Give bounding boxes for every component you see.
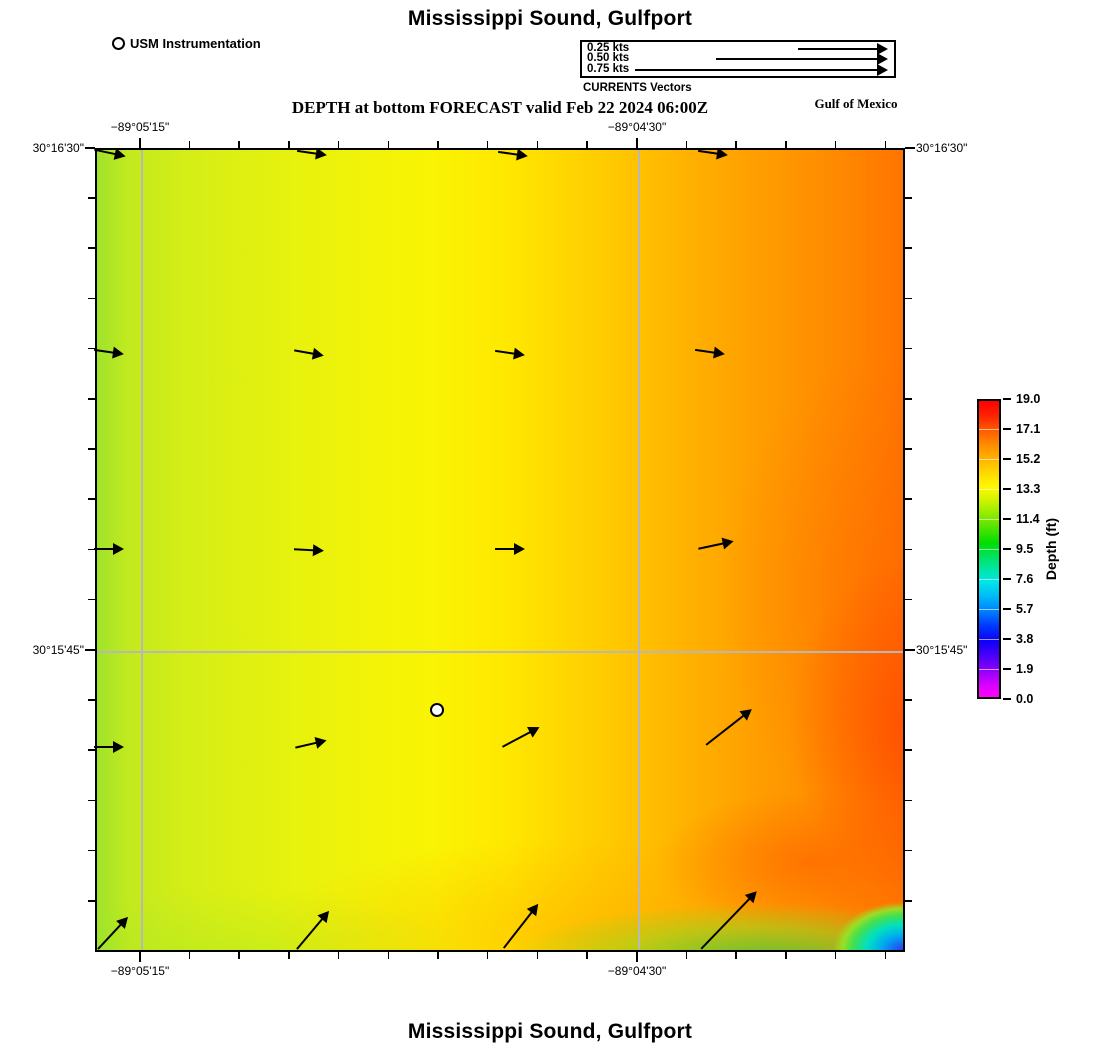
x-tick-top	[586, 141, 588, 148]
y-tick-right	[905, 749, 912, 751]
x-tick-top	[636, 138, 638, 148]
x-axis-label-top: −89°04'30"	[608, 120, 666, 134]
x-tick-bottom	[139, 952, 141, 962]
y-axis-label-left: 30°16'30"	[33, 141, 84, 155]
y-axis-label-right: 30°15'45"	[916, 643, 967, 657]
colorbar-separator	[979, 579, 999, 580]
arrow-shaft	[495, 548, 516, 550]
y-tick-right	[905, 348, 912, 350]
colorbar-separator	[979, 489, 999, 490]
arrow-head	[315, 148, 328, 161]
x-tick-bottom	[388, 952, 390, 959]
gridline-horizontal	[97, 651, 903, 653]
y-tick-right	[905, 800, 912, 802]
y-tick-left	[85, 649, 95, 651]
y-tick-left	[88, 850, 95, 852]
x-tick-top	[338, 141, 340, 148]
colorbar-tick	[1003, 578, 1011, 580]
x-tick-top	[735, 141, 737, 148]
y-axis-label-right: 30°16'30"	[916, 141, 967, 155]
chart-title-top: Mississippi Sound, Gulfport	[0, 7, 1100, 31]
y-tick-left	[88, 699, 95, 701]
current-vector-arrow	[495, 542, 525, 556]
x-tick-top	[189, 141, 191, 148]
colorbar-tick-label: 9.5	[1016, 542, 1033, 556]
arrow-head	[713, 347, 726, 360]
arrow-shaft	[698, 542, 725, 550]
y-tick-left	[88, 800, 95, 802]
usm-legend-label: USM Instrumentation	[130, 36, 261, 51]
colorbar-tick	[1003, 638, 1011, 640]
colorbar-separator	[979, 639, 999, 640]
y-tick-right	[905, 398, 912, 400]
x-tick-top	[388, 141, 390, 148]
y-tick-left	[88, 599, 95, 601]
arrow-head	[112, 347, 125, 360]
colorbar-tick	[1003, 608, 1011, 610]
x-tick-bottom	[636, 952, 638, 962]
x-tick-top	[139, 138, 141, 148]
y-tick-right	[905, 197, 912, 199]
arrow-shaft	[94, 548, 115, 550]
x-tick-bottom	[586, 952, 588, 959]
arrow-head	[315, 735, 328, 749]
x-tick-bottom	[885, 952, 887, 959]
arrow-shaft	[94, 746, 115, 748]
colorbar-separator	[979, 429, 999, 430]
colorbar-tick-label: 7.6	[1016, 572, 1033, 586]
x-tick-bottom	[437, 952, 439, 959]
y-tick-right	[905, 247, 912, 249]
colorbar-tick	[1003, 668, 1011, 670]
colorbar-tick	[1003, 398, 1011, 400]
y-tick-left	[88, 498, 95, 500]
colorbar-axis-label: Depth (ft)	[1043, 518, 1059, 580]
colorbar-tick-label: 13.3	[1016, 482, 1040, 496]
arrow-head	[516, 149, 529, 162]
x-tick-top	[487, 141, 489, 148]
y-tick-right	[905, 448, 912, 450]
colorbar-tick	[1003, 518, 1011, 520]
arrow-shaft	[798, 48, 879, 50]
region-label: Gulf of Mexico	[781, 96, 931, 112]
instrument-marker	[430, 703, 444, 717]
gridline-vertical	[638, 150, 640, 950]
arrow-head	[514, 543, 525, 555]
y-tick-left	[88, 298, 95, 300]
gridline-vertical	[141, 150, 143, 950]
colorbar-separator	[979, 519, 999, 520]
x-tick-top	[835, 141, 837, 148]
arrow-shaft	[294, 548, 315, 551]
figure: Mississippi Sound, Gulfport USM Instrume…	[0, 0, 1100, 1050]
x-axis-label-bottom: −89°04'30"	[608, 964, 666, 978]
arrow-head	[877, 64, 888, 76]
colorbar-tick-label: 17.1	[1016, 422, 1040, 436]
colorbar-separator	[979, 669, 999, 670]
x-tick-bottom	[835, 952, 837, 959]
colorbar-tick-label: 19.0	[1016, 392, 1040, 406]
instrument-circle-icon	[112, 37, 125, 50]
chart-title-bottom: Mississippi Sound, Gulfport	[0, 1020, 1100, 1044]
arrow-shaft	[295, 741, 318, 748]
x-tick-top	[686, 141, 688, 148]
y-tick-left	[88, 900, 95, 902]
y-axis-label-left: 30°15'45"	[33, 643, 84, 657]
y-tick-right	[905, 900, 912, 902]
currents-legend-item-label: 0.75 kts	[587, 63, 629, 75]
colorbar-tick	[1003, 548, 1011, 550]
currents-legend-caption: CURRENTS Vectors	[583, 82, 692, 94]
colorbar-tick-label: 1.9	[1016, 662, 1033, 676]
x-tick-bottom	[288, 952, 290, 959]
arrow-shaft	[635, 69, 879, 71]
colorbar-tick-label: 3.8	[1016, 632, 1033, 646]
current-vector-arrow	[94, 740, 124, 754]
x-tick-bottom	[238, 952, 240, 959]
colorbar-tick	[1003, 428, 1011, 430]
x-tick-top	[288, 141, 290, 148]
colorbar-tick	[1003, 698, 1011, 700]
y-tick-right	[905, 147, 915, 149]
y-tick-right	[905, 649, 915, 651]
y-tick-right	[905, 498, 912, 500]
y-tick-right	[905, 549, 912, 551]
current-vector-arrow	[94, 542, 124, 556]
x-tick-top	[238, 141, 240, 148]
y-tick-right	[905, 599, 912, 601]
x-tick-bottom	[686, 952, 688, 959]
colorbar-separator	[979, 549, 999, 550]
arrow-head	[716, 148, 729, 161]
usm-instrumentation-legend: USM Instrumentation	[112, 36, 261, 51]
x-tick-top	[885, 141, 887, 148]
arrow-head	[113, 741, 124, 753]
currents-legend-arrow	[635, 63, 888, 77]
x-axis-label-top: −89°05'15"	[111, 120, 169, 134]
y-tick-right	[905, 699, 912, 701]
x-tick-bottom	[189, 952, 191, 959]
arrow-head	[312, 348, 325, 362]
x-tick-top	[437, 141, 439, 148]
arrow-head	[722, 535, 735, 549]
colorbar-tick-label: 15.2	[1016, 452, 1040, 466]
x-tick-bottom	[487, 952, 489, 959]
arrow-shaft	[716, 58, 879, 60]
arrow-head	[313, 544, 325, 557]
colorbar-tick-label: 11.4	[1016, 512, 1040, 526]
colorbar-tick-label: 5.7	[1016, 602, 1033, 616]
x-axis-label-bottom: −89°05'15"	[111, 964, 169, 978]
currents-legend-box: 0.25 kts0.50 kts0.75 kts	[580, 40, 896, 78]
y-tick-left	[88, 247, 95, 249]
x-tick-top	[785, 141, 787, 148]
arrow-head	[513, 348, 526, 361]
y-tick-left	[88, 448, 95, 450]
x-tick-bottom	[338, 952, 340, 959]
y-tick-left	[88, 398, 95, 400]
x-tick-bottom	[537, 952, 539, 959]
y-tick-right	[905, 850, 912, 852]
x-tick-top	[537, 141, 539, 148]
colorbar-separator	[979, 459, 999, 460]
arrow-head	[113, 543, 124, 555]
colorbar-tick-label: 0.0	[1016, 692, 1033, 706]
x-tick-bottom	[785, 952, 787, 959]
x-tick-bottom	[735, 952, 737, 959]
y-tick-right	[905, 298, 912, 300]
y-tick-left	[88, 197, 95, 199]
colorbar-tick	[1003, 458, 1011, 460]
colorbar-tick	[1003, 488, 1011, 490]
current-vector-arrow	[294, 542, 325, 558]
colorbar-separator	[979, 609, 999, 610]
